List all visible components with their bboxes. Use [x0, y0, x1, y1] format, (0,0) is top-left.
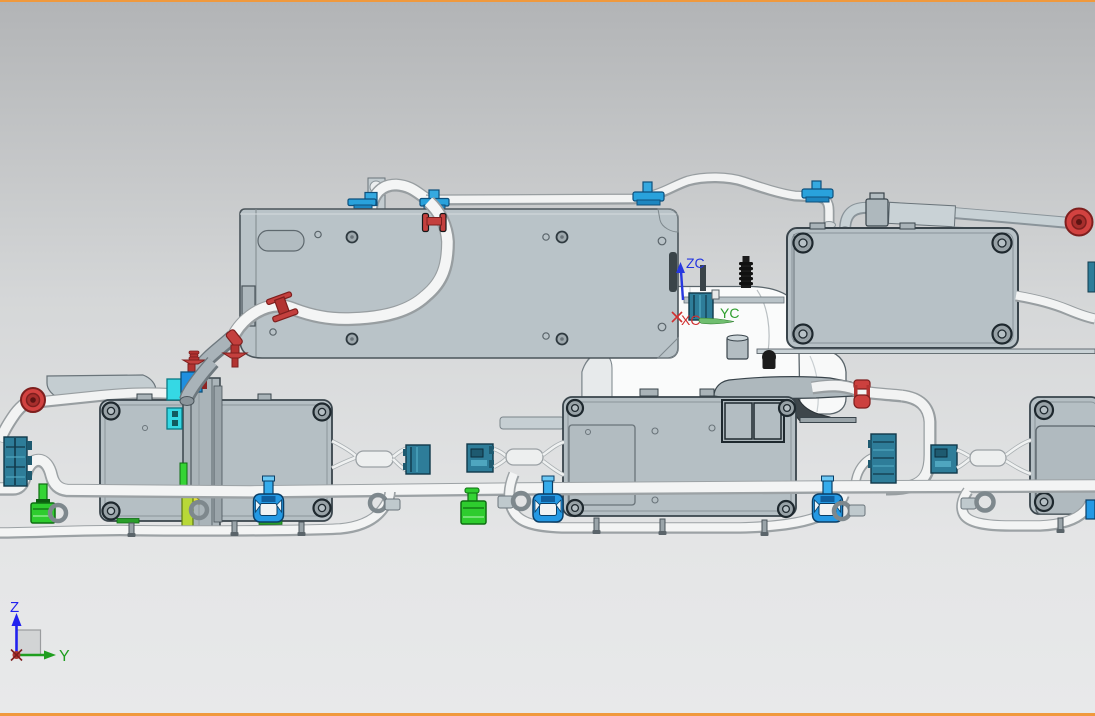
- svg-text:ZC: ZC: [686, 255, 705, 271]
- svg-text:Z: Z: [10, 599, 19, 616]
- svg-text:Y: Y: [59, 648, 70, 665]
- svg-text:YC: YC: [720, 305, 739, 321]
- svg-text:XC: XC: [681, 312, 700, 328]
